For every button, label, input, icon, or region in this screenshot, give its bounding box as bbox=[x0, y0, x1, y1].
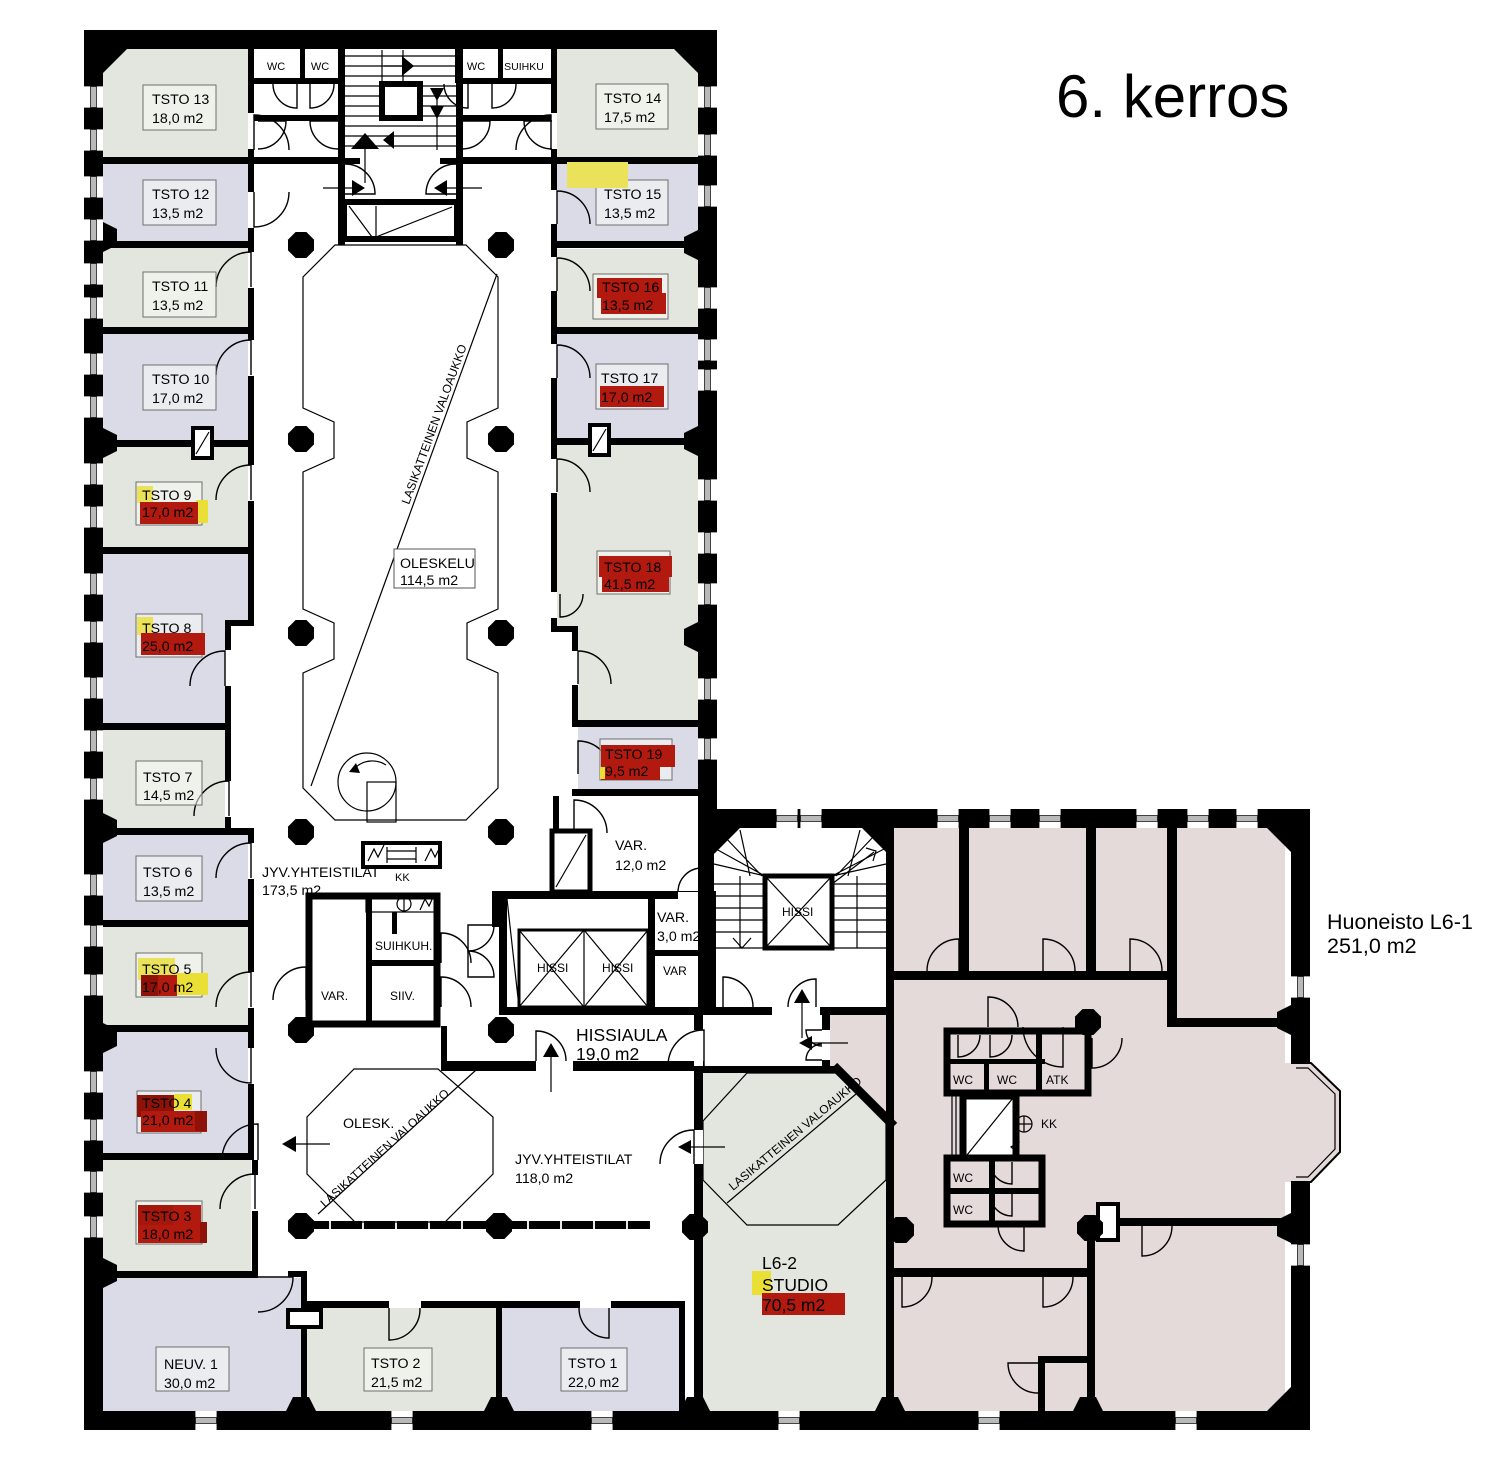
svg-text:17,0 m2: 17,0 m2 bbox=[142, 980, 193, 996]
svg-text:VAR.: VAR. bbox=[615, 838, 647, 854]
svg-text:TSTO 10: TSTO 10 bbox=[152, 372, 209, 388]
svg-text:13,5 m2: 13,5 m2 bbox=[152, 298, 203, 314]
svg-text:TSTO 5: TSTO 5 bbox=[142, 962, 192, 978]
svg-text:HISSI: HISSI bbox=[602, 961, 633, 975]
svg-text:WC: WC bbox=[311, 61, 329, 73]
svg-text:TSTO 11: TSTO 11 bbox=[152, 279, 208, 295]
svg-text:41,5 m2: 41,5 m2 bbox=[604, 577, 655, 593]
svg-text:114,5 m2: 114,5 m2 bbox=[400, 573, 458, 589]
svg-text:WC: WC bbox=[467, 61, 485, 73]
svg-text:13,5 m2: 13,5 m2 bbox=[143, 884, 194, 900]
svg-text:STUDIO: STUDIO bbox=[762, 1275, 828, 1295]
svg-text:21,5 m2: 21,5 m2 bbox=[371, 1375, 422, 1391]
svg-text:WC: WC bbox=[267, 61, 285, 73]
svg-text:HISSI: HISSI bbox=[782, 905, 813, 919]
svg-text:30,0 m2: 30,0 m2 bbox=[164, 1376, 215, 1392]
svg-text:TSTO 17: TSTO 17 bbox=[601, 371, 658, 387]
svg-text:70,5 m2: 70,5 m2 bbox=[762, 1295, 825, 1315]
svg-text:6. kerros: 6. kerros bbox=[1056, 63, 1289, 130]
svg-text:TSTO 4: TSTO 4 bbox=[142, 1096, 192, 1112]
svg-text:TSTO 18: TSTO 18 bbox=[604, 560, 661, 576]
svg-text:WC: WC bbox=[953, 1073, 973, 1087]
svg-text:TSTO 7: TSTO 7 bbox=[143, 770, 193, 786]
svg-text:JYV.YHTEISTILAT: JYV.YHTEISTILAT bbox=[262, 865, 380, 881]
svg-text:17,0 m2: 17,0 m2 bbox=[142, 505, 193, 521]
svg-text:VAR.: VAR. bbox=[657, 910, 689, 926]
svg-text:OLESK.: OLESK. bbox=[343, 1116, 394, 1132]
svg-text:13,5 m2: 13,5 m2 bbox=[602, 298, 653, 314]
svg-text:118,0 m2: 118,0 m2 bbox=[515, 1171, 573, 1187]
svg-text:12,0 m2: 12,0 m2 bbox=[615, 858, 666, 874]
svg-text:17,0 m2: 17,0 m2 bbox=[152, 391, 203, 407]
svg-text:HISSIAULA: HISSIAULA bbox=[576, 1025, 668, 1045]
svg-text:WC: WC bbox=[953, 1171, 973, 1185]
svg-text:TSTO 19: TSTO 19 bbox=[605, 747, 662, 763]
svg-text:TSTO 3: TSTO 3 bbox=[142, 1209, 192, 1225]
svg-text:3,0 m2: 3,0 m2 bbox=[657, 929, 700, 945]
svg-text:JYV.YHTEISTILAT: JYV.YHTEISTILAT bbox=[515, 1152, 633, 1168]
svg-text:WC: WC bbox=[997, 1073, 1017, 1087]
svg-text:SUIHKUH.: SUIHKUH. bbox=[375, 939, 432, 953]
svg-text:TSTO 14: TSTO 14 bbox=[604, 91, 661, 107]
svg-text:17,0 m2: 17,0 m2 bbox=[601, 390, 652, 406]
svg-text:18,0 m2: 18,0 m2 bbox=[142, 1227, 193, 1243]
svg-text:TSTO 12: TSTO 12 bbox=[152, 187, 209, 203]
svg-text:21,0 m2: 21,0 m2 bbox=[142, 1113, 193, 1129]
svg-text:Huoneisto L6-1: Huoneisto L6-1 bbox=[1327, 910, 1473, 934]
svg-text:KK: KK bbox=[1041, 1117, 1057, 1131]
svg-text:251,0 m2: 251,0 m2 bbox=[1327, 934, 1417, 958]
svg-text:22,0 m2: 22,0 m2 bbox=[568, 1375, 619, 1391]
svg-text:17,5 m2: 17,5 m2 bbox=[604, 110, 655, 126]
svg-text:SUIHKU: SUIHKU bbox=[504, 61, 544, 73]
svg-text:VAR: VAR bbox=[663, 964, 687, 978]
svg-text:14,5 m2: 14,5 m2 bbox=[143, 788, 194, 804]
svg-text:NEUV. 1: NEUV. 1 bbox=[164, 1357, 218, 1373]
svg-text:VAR.: VAR. bbox=[321, 989, 348, 1003]
svg-text:18,0 m2: 18,0 m2 bbox=[152, 111, 203, 127]
svg-text:13,5 m2: 13,5 m2 bbox=[604, 206, 655, 222]
svg-text:TSTO 1: TSTO 1 bbox=[568, 1356, 618, 1372]
svg-text:OLESKELU: OLESKELU bbox=[400, 556, 475, 572]
svg-text:KK: KK bbox=[395, 872, 410, 884]
svg-text:ATK: ATK bbox=[1046, 1073, 1068, 1087]
svg-text:TSTO 13: TSTO 13 bbox=[152, 92, 209, 108]
svg-text:19,0 m2: 19,0 m2 bbox=[576, 1044, 639, 1064]
svg-text:TSTO 16: TSTO 16 bbox=[602, 280, 659, 296]
svg-text:WC: WC bbox=[953, 1203, 973, 1217]
svg-text:25,0 m2: 25,0 m2 bbox=[142, 639, 193, 655]
svg-text:TSTO 8: TSTO 8 bbox=[142, 621, 192, 637]
svg-text:173,5 m2: 173,5 m2 bbox=[262, 883, 321, 899]
svg-text:TSTO 6: TSTO 6 bbox=[143, 865, 193, 881]
svg-text:9,5 m2: 9,5 m2 bbox=[605, 764, 648, 780]
svg-text:SIIV.: SIIV. bbox=[390, 989, 415, 1003]
svg-text:13,5 m2: 13,5 m2 bbox=[152, 206, 203, 222]
svg-text:TSTO 2: TSTO 2 bbox=[371, 1356, 421, 1372]
svg-text:TSTO 15: TSTO 15 bbox=[604, 187, 661, 203]
svg-text:HISSI: HISSI bbox=[537, 961, 568, 975]
svg-text:L6-2: L6-2 bbox=[762, 1253, 797, 1273]
svg-text:TSTO 9: TSTO 9 bbox=[142, 488, 192, 504]
